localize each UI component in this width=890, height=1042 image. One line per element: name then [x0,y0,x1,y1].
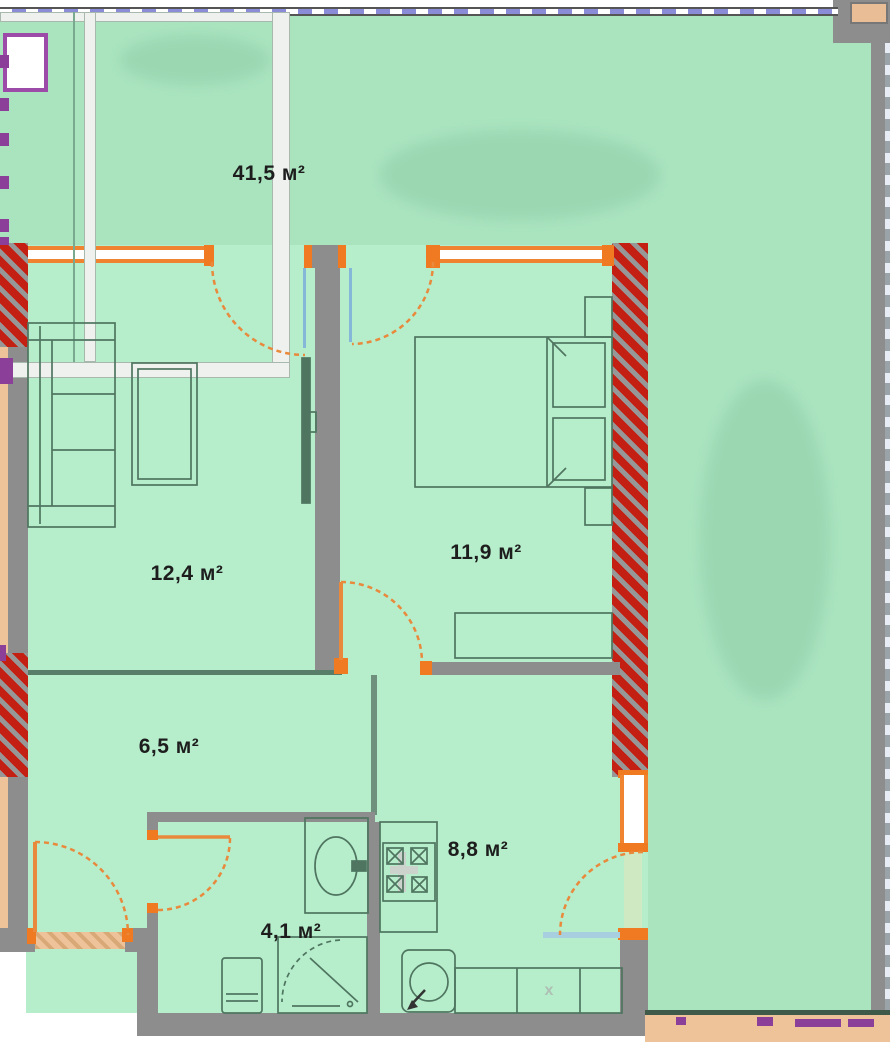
living-hall-divider [28,670,342,675]
boundary-dash [0,645,6,661]
outside-strip [0,347,8,653]
boundary-dash [676,1017,686,1025]
hall-kitchen-partition [371,675,377,815]
load-bearing-wall [0,653,28,777]
boundary-dash [0,98,9,111]
boundary-dashes-right [885,43,890,1042]
door-frame-accent [349,268,352,342]
bath-area-label: 4,1 м² [261,920,322,944]
terrace-shadow-blob [700,380,830,700]
boundary-dash [848,1019,874,1027]
terrace-door-opening [624,852,642,930]
living-bedroom-wall [315,268,340,673]
living-room-window [28,246,206,263]
balcony-rail [0,362,290,378]
boundary-dash [0,237,9,245]
boundary-dash [0,358,13,384]
neighbor-window-box [3,33,48,92]
appliance-placeholder-mark: x [545,982,554,1000]
boundary-dash [0,55,9,68]
outside-strip [0,777,8,930]
boundary-dash [757,1017,773,1026]
floor-plan: 41,5 м² 12,4 м² 11,9 м² 6,5 м² 8,8 м² 4,… [0,0,890,1042]
terrace-area-label: 41,5 м² [233,162,306,186]
terrace-shadow-blob [380,130,660,220]
door-post [338,245,346,268]
hall-area-label: 6,5 м² [139,735,200,759]
door-post [27,928,36,944]
boundary-dash [0,219,9,232]
entrance-threshold [35,932,125,949]
door-post [426,245,440,268]
terrace-shadow-blob [120,35,270,85]
door-post [618,843,648,852]
kitchen-area-label: 8,8 м² [448,838,509,862]
door-post [304,245,312,268]
boundary-dash [0,176,9,189]
door-frame-accent [303,268,306,348]
bottom-wall [137,1013,648,1036]
boundary-dash [795,1019,841,1027]
door-post [618,928,648,940]
left-wall [8,347,28,653]
load-bearing-wall [612,243,648,777]
door-post [334,658,348,674]
door-post [147,830,158,840]
door-post [602,245,614,266]
bathroom-right-wall [367,822,380,1013]
bedroom-window [440,246,612,263]
door-post [204,245,214,266]
door-post [420,661,432,675]
bedroom-kitchen-wall [428,662,620,675]
load-bearing-wall [0,243,28,347]
left-wall [8,777,28,930]
boundary-dash [0,133,9,146]
balcony-rail [0,12,290,22]
balcony-edge-line [73,12,75,362]
kitchen-window [620,775,648,845]
balcony-rail [272,12,290,378]
balcony-rail [84,12,96,362]
neighbor-shaft [850,2,888,24]
bedroom-area-label: 11,9 м² [450,541,522,565]
door-post [147,903,158,913]
sill-accent [543,932,620,938]
door-post [122,928,133,942]
living-area-label: 12,4 м² [151,562,224,586]
bathroom-top-wall [147,812,375,822]
